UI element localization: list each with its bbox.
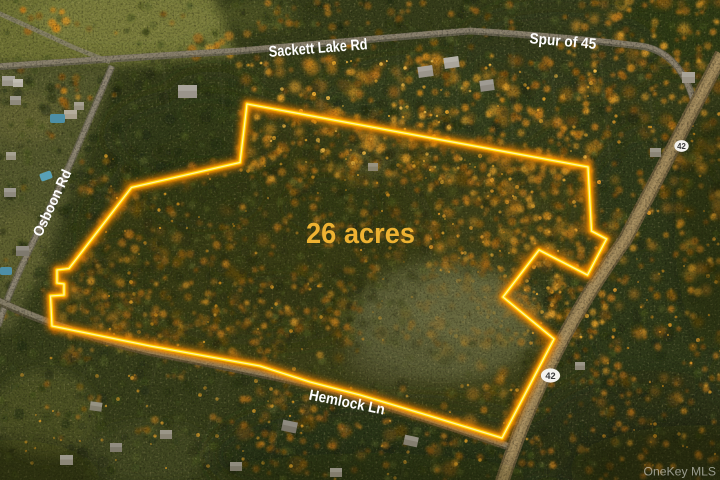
svg-text:OneKey MLS: OneKey MLS <box>644 465 716 479</box>
svg-text:42: 42 <box>677 142 686 151</box>
svg-text:42: 42 <box>545 371 555 381</box>
svg-text:26 acres: 26 acres <box>306 218 415 250</box>
